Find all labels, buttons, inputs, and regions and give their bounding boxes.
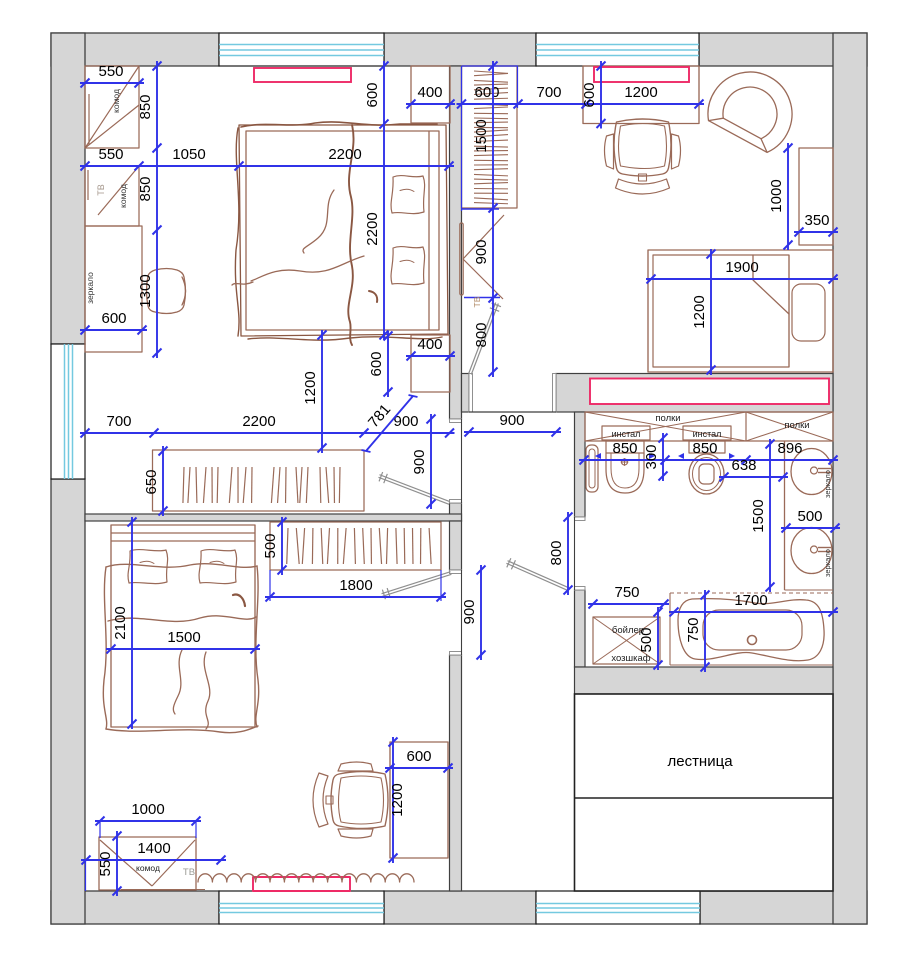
svg-text:600: 600: [364, 82, 381, 107]
svg-text:1200: 1200: [691, 295, 708, 328]
svg-text:400: 400: [417, 336, 442, 353]
svg-text:2100: 2100: [112, 606, 129, 639]
svg-text:500: 500: [262, 533, 279, 558]
svg-text:1800: 1800: [339, 577, 372, 594]
svg-text:600: 600: [101, 310, 126, 327]
svg-text:1200: 1200: [389, 783, 406, 816]
svg-text:750: 750: [614, 584, 639, 601]
svg-text:600: 600: [368, 351, 385, 376]
svg-text:850: 850: [692, 440, 717, 457]
svg-text:850: 850: [612, 440, 637, 457]
svg-text:896: 896: [777, 440, 802, 457]
svg-text:900: 900: [499, 412, 524, 429]
svg-text:850: 850: [137, 94, 154, 119]
svg-text:500: 500: [638, 627, 655, 652]
svg-text:300: 300: [643, 444, 660, 469]
svg-text:500: 500: [797, 508, 822, 525]
svg-text:2200: 2200: [328, 146, 361, 163]
svg-text:1400: 1400: [137, 840, 170, 857]
svg-text:550: 550: [98, 146, 123, 163]
svg-text:ТВ: ТВ: [96, 184, 106, 196]
svg-text:зеркало: зеркало: [85, 272, 95, 304]
svg-text:900: 900: [473, 239, 490, 264]
svg-text:638: 638: [731, 457, 756, 474]
svg-text:комод: комод: [111, 89, 121, 113]
svg-text:600: 600: [581, 82, 598, 107]
svg-text:1500: 1500: [750, 499, 767, 532]
svg-text:900: 900: [411, 449, 428, 474]
svg-text:700: 700: [536, 84, 561, 101]
svg-text:1000: 1000: [768, 179, 785, 212]
svg-text:1700: 1700: [734, 592, 767, 609]
svg-text:2200: 2200: [242, 413, 275, 430]
svg-text:хозшкаф: хозшкаф: [611, 653, 650, 664]
svg-text:400: 400: [417, 84, 442, 101]
svg-text:лестница: лестница: [667, 753, 733, 770]
svg-text:1500: 1500: [473, 119, 490, 152]
svg-text:инстал: инстал: [693, 429, 722, 439]
svg-text:полки: полки: [784, 420, 809, 431]
svg-text:650: 650: [143, 469, 160, 494]
svg-text:1500: 1500: [167, 629, 200, 646]
svg-text:1900: 1900: [725, 259, 758, 276]
svg-text:зеркало: зеркало: [823, 549, 832, 577]
svg-text:1300: 1300: [137, 274, 154, 307]
svg-text:ТВ: ТВ: [472, 296, 482, 307]
svg-text:1000: 1000: [131, 801, 164, 818]
svg-text:600: 600: [474, 84, 499, 101]
svg-text:полки: полки: [655, 413, 680, 424]
svg-text:инстал: инстал: [612, 429, 641, 439]
svg-text:1050: 1050: [172, 146, 205, 163]
svg-text:2200: 2200: [364, 212, 381, 245]
svg-text:комод: комод: [118, 184, 128, 208]
svg-text:ТВ: ТВ: [183, 867, 195, 878]
svg-text:350: 350: [804, 212, 829, 229]
svg-text:800: 800: [473, 322, 490, 347]
svg-text:комод: комод: [136, 863, 160, 873]
svg-text:900: 900: [461, 599, 478, 624]
svg-text:600: 600: [406, 748, 431, 765]
svg-text:зеркало: зеркало: [823, 470, 832, 498]
svg-text:1200: 1200: [302, 371, 319, 404]
svg-text:550: 550: [98, 63, 123, 80]
svg-text:800: 800: [548, 540, 565, 565]
svg-text:750: 750: [685, 617, 702, 642]
svg-text:550: 550: [97, 851, 114, 876]
svg-text:850: 850: [137, 176, 154, 201]
svg-text:700: 700: [106, 413, 131, 430]
svg-text:1200: 1200: [624, 84, 657, 101]
